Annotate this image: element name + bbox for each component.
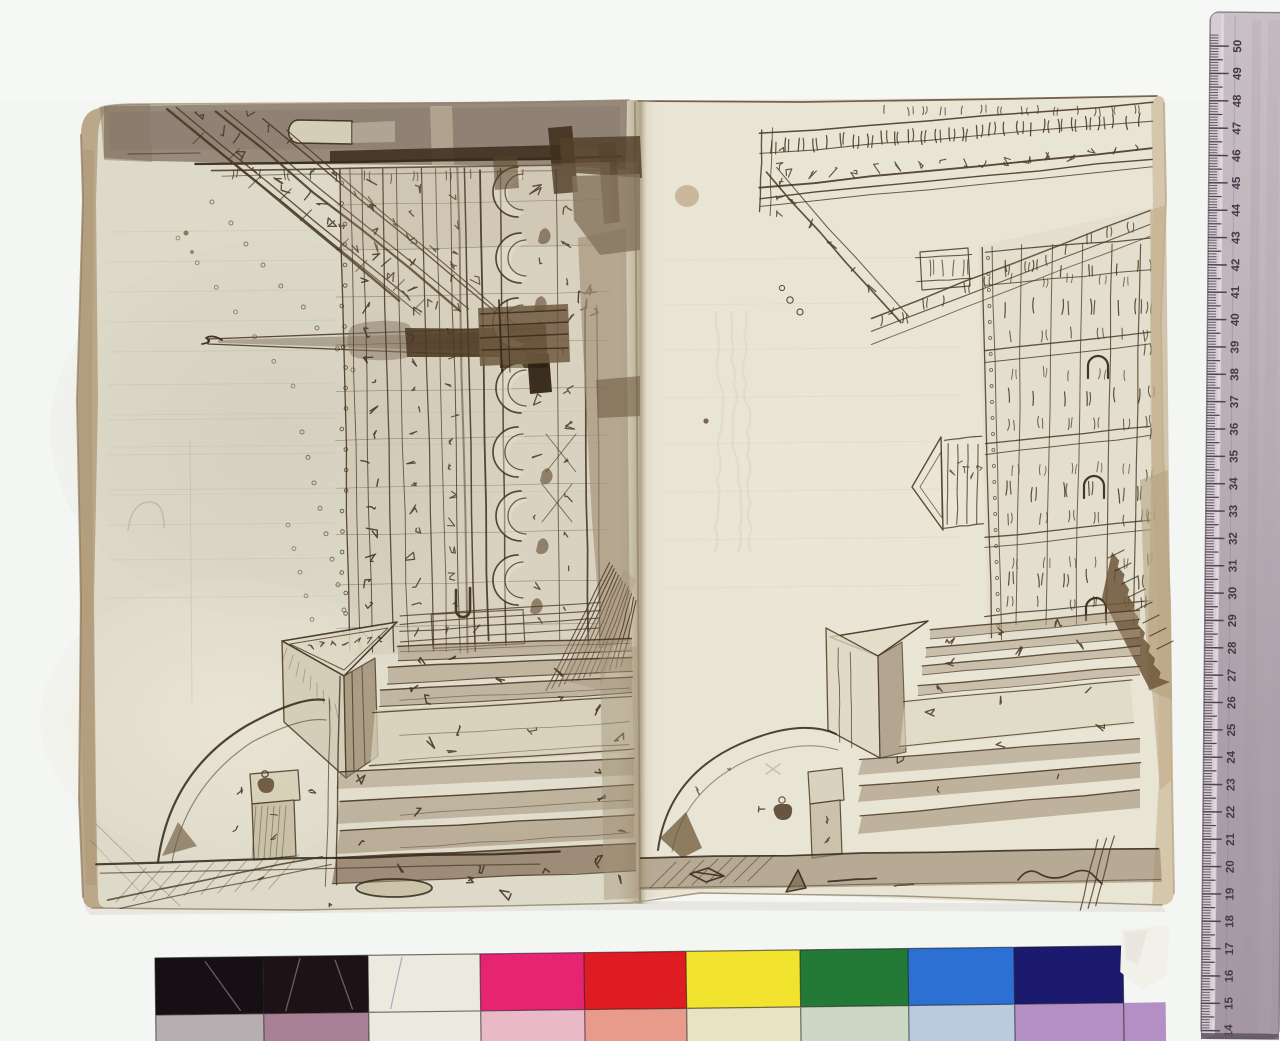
svg-text:17: 17 [1224,942,1236,955]
svg-text:32: 32 [1228,532,1240,545]
svg-text:34: 34 [1228,477,1240,491]
svg-text:47: 47 [1231,122,1243,135]
svg-text:44: 44 [1231,203,1243,217]
svg-text:16: 16 [1224,970,1236,983]
svg-text:20: 20 [1225,860,1237,873]
svg-text:15: 15 [1223,996,1235,1010]
svg-text:31: 31 [1227,559,1239,573]
svg-text:28: 28 [1227,641,1239,655]
svg-text:45: 45 [1231,176,1243,190]
svg-text:37: 37 [1229,395,1241,408]
svg-text:35: 35 [1228,449,1240,463]
svg-text:18: 18 [1224,914,1236,928]
svg-text:49: 49 [1232,67,1244,80]
svg-text:22: 22 [1225,806,1237,819]
svg-text:40: 40 [1230,313,1242,326]
svg-text:21: 21 [1225,832,1237,846]
svg-text:29: 29 [1227,614,1239,627]
svg-text:39: 39 [1229,341,1241,354]
svg-text:38: 38 [1229,367,1241,381]
svg-text:24: 24 [1226,750,1238,764]
svg-text:30: 30 [1227,587,1239,600]
svg-text:41: 41 [1230,285,1242,299]
svg-text:33: 33 [1228,505,1240,518]
svg-text:43: 43 [1230,231,1242,244]
svg-text:27: 27 [1226,669,1238,682]
svg-text:48: 48 [1232,94,1244,108]
svg-text:26: 26 [1226,696,1238,709]
svg-text:46: 46 [1231,149,1243,162]
svg-text:19: 19 [1224,888,1236,901]
svg-text:50: 50 [1232,40,1244,53]
svg-text:23: 23 [1225,778,1237,791]
svg-text:25: 25 [1226,723,1238,737]
svg-text:36: 36 [1229,423,1241,436]
svg-text:42: 42 [1230,259,1242,272]
